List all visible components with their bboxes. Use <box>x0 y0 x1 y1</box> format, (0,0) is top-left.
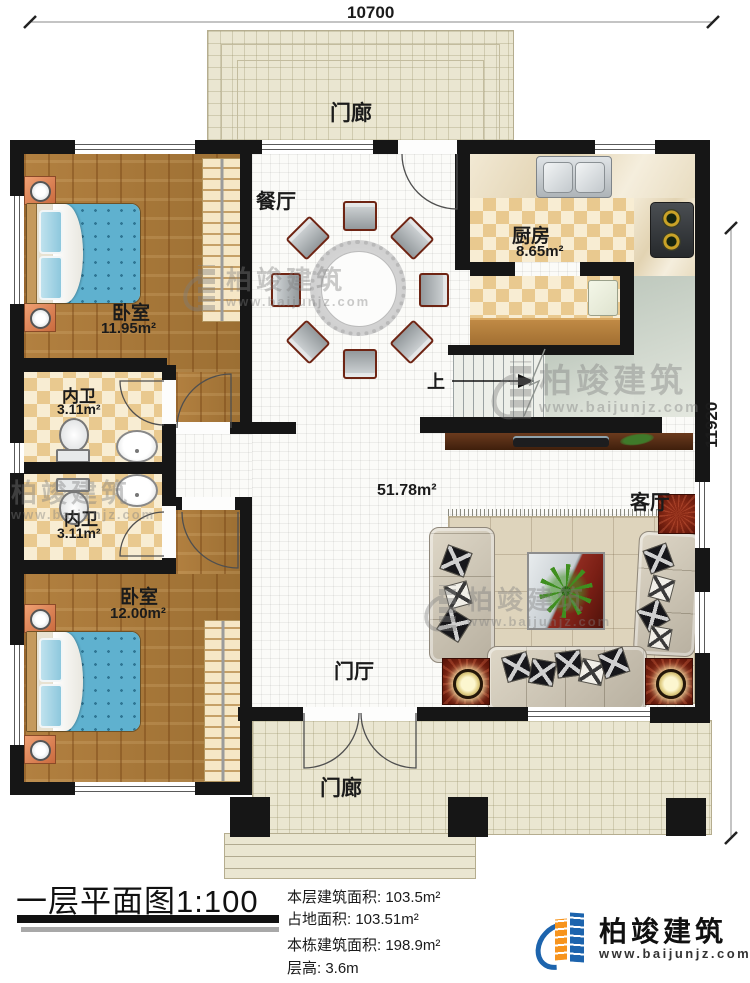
pillow <box>39 684 63 728</box>
dining-chair <box>343 349 377 379</box>
toilet-bowl <box>59 418 89 452</box>
bed-bedroom1 <box>26 203 141 304</box>
toilet-tank <box>56 449 90 463</box>
doorway-porch-top <box>398 140 457 154</box>
wall-bath-bottom <box>10 560 176 574</box>
wall-corner-block <box>650 707 710 723</box>
label-stairs-up: 上 <box>427 368 445 394</box>
bath-alcove-floor <box>176 434 252 500</box>
brand-logo-icon <box>538 910 590 968</box>
brand-logo: 柏竣建筑 www.baijunjz.com <box>538 910 750 968</box>
wall-bath-divider <box>10 462 162 474</box>
watermark: 柏竣建筑 www.baijunjz.com <box>426 585 611 631</box>
lamp-icon <box>30 609 51 630</box>
dining-chair <box>419 273 449 307</box>
brand-url: www.baijunjz.com <box>599 946 750 961</box>
wall-bedroom1-bottom <box>10 358 167 372</box>
doorway-bedroom2 <box>182 497 235 510</box>
lamp-icon <box>30 740 51 761</box>
pillow <box>39 638 63 682</box>
stat-floor-area: 本层建筑面积: 103.5m² <box>287 886 440 907</box>
nightstand <box>24 735 56 764</box>
watermark-url: www.baijunjz.com <box>226 294 370 309</box>
lamp-icon <box>656 669 686 699</box>
window <box>75 782 195 795</box>
sofa-pillow <box>528 658 557 687</box>
window <box>595 140 655 154</box>
watermark-name: 柏竣建筑 <box>11 480 155 507</box>
kitchen-sink <box>536 156 612 198</box>
label-porch-top: 门廊 <box>330 97 372 127</box>
porch-column <box>230 797 270 837</box>
wall-bedroom2-right <box>240 497 252 782</box>
watermark-logo-icon <box>185 265 219 311</box>
wall-tv <box>420 417 662 433</box>
sink-bath1 <box>116 430 158 463</box>
doorway-bath2 <box>162 506 176 558</box>
watermark-logo-icon <box>426 585 460 631</box>
wall-foyer-bottom <box>238 707 304 721</box>
sink-bowl <box>575 162 605 193</box>
watermark-name: 柏竣建筑 <box>226 267 370 294</box>
window <box>528 707 650 721</box>
logo-building-orange-icon <box>555 918 567 960</box>
label-porch-bottom: 门廊 <box>320 772 362 802</box>
headboard <box>27 632 37 731</box>
wall-nook-stub <box>230 422 296 434</box>
logo-building-blue-icon <box>570 913 584 963</box>
label-kitchen-area: 8.65m² <box>516 243 564 260</box>
dim-top: 10700 <box>347 3 394 23</box>
nightstand <box>24 176 56 205</box>
watermark-url: www.baijunjz.com <box>11 507 155 522</box>
window <box>10 645 24 745</box>
wall-kitchen-stub <box>470 262 515 276</box>
title-underline-light <box>21 927 279 932</box>
lamp-table-right <box>645 658 693 705</box>
label-bedroom2-area: 12.00m² <box>110 605 166 622</box>
stat-total-area: 本栋建筑面积: 198.9m² <box>287 934 440 955</box>
floorplan-canvas: 10700 11920 门廊 餐厅 厨房 8.65m² 卧室 11.95m² 内… <box>0 0 750 983</box>
label-living: 客厅 <box>630 486 670 515</box>
lamp-table-left <box>442 658 490 705</box>
label-foyer: 门厅 <box>334 655 374 684</box>
burner-icon <box>662 232 681 251</box>
watermark-logo-icon <box>494 361 537 419</box>
headboard <box>27 204 37 303</box>
doorway-main-entrance <box>303 707 417 721</box>
bedroom2-entry-floor <box>176 510 240 574</box>
window <box>262 140 373 154</box>
window <box>75 140 195 154</box>
wardrobe-bedroom2 <box>204 620 242 782</box>
doorway-bedroom1 <box>176 422 230 434</box>
sink-bowl <box>543 162 573 193</box>
lamp-icon <box>453 669 483 699</box>
wall-kitchen-inner <box>620 262 634 354</box>
stat-floor-height: 层高: 3.6m <box>287 957 359 978</box>
label-bath1-area: 3.11m² <box>57 401 101 417</box>
dim-right: 11920 <box>702 402 722 448</box>
burner-icon <box>662 209 681 228</box>
window <box>10 196 24 304</box>
watermark: 柏竣建筑 www.baijunjz.com <box>498 364 700 416</box>
wall-kitchen-bottom <box>448 345 634 355</box>
stove <box>650 202 694 258</box>
window <box>695 592 710 653</box>
sofa-pillow <box>647 625 672 650</box>
label-dining: 餐厅 <box>256 185 296 214</box>
porch-column <box>666 798 706 836</box>
lamp-icon <box>30 308 51 329</box>
nightstand <box>24 303 56 332</box>
watermark-logo-icon <box>0 478 4 524</box>
fridge <box>588 280 618 316</box>
doorway-bath1 <box>162 380 176 424</box>
watermark-url: www.baijunjz.com <box>467 614 611 629</box>
watermark-name: 柏竣建筑 <box>539 364 700 399</box>
pillow <box>39 256 63 300</box>
brand-name: 柏竣建筑 <box>599 917 750 946</box>
nightstand <box>24 604 56 633</box>
entry-steps <box>224 833 476 879</box>
label-bedroom1-area: 11.95m² <box>101 320 156 337</box>
watermark: 柏竣建筑 www.baijunjz.com <box>0 478 155 524</box>
watermark-url: www.baijunjz.com <box>539 399 700 416</box>
wall-kitchen-left <box>455 154 470 270</box>
label-hall-area: 51.78m² <box>377 482 437 500</box>
window <box>10 443 24 473</box>
watermark-name: 柏竣建筑 <box>467 587 611 614</box>
lamp-icon <box>30 181 51 202</box>
bed-bedroom2 <box>26 631 141 732</box>
porch-column <box>448 797 488 837</box>
stat-land-area: 占地面积: 103.51m² <box>287 908 419 929</box>
wall-foyer-bottom <box>417 707 528 721</box>
dining-chair <box>343 201 377 231</box>
label-bath2-area: 3.11m² <box>57 525 101 541</box>
toilet-bath1 <box>56 418 88 464</box>
title-underline <box>17 915 279 923</box>
window <box>695 482 710 548</box>
watermark: 柏竣建筑 www.baijunjz.com <box>185 265 370 311</box>
pillow <box>39 210 63 254</box>
tv <box>513 436 609 447</box>
